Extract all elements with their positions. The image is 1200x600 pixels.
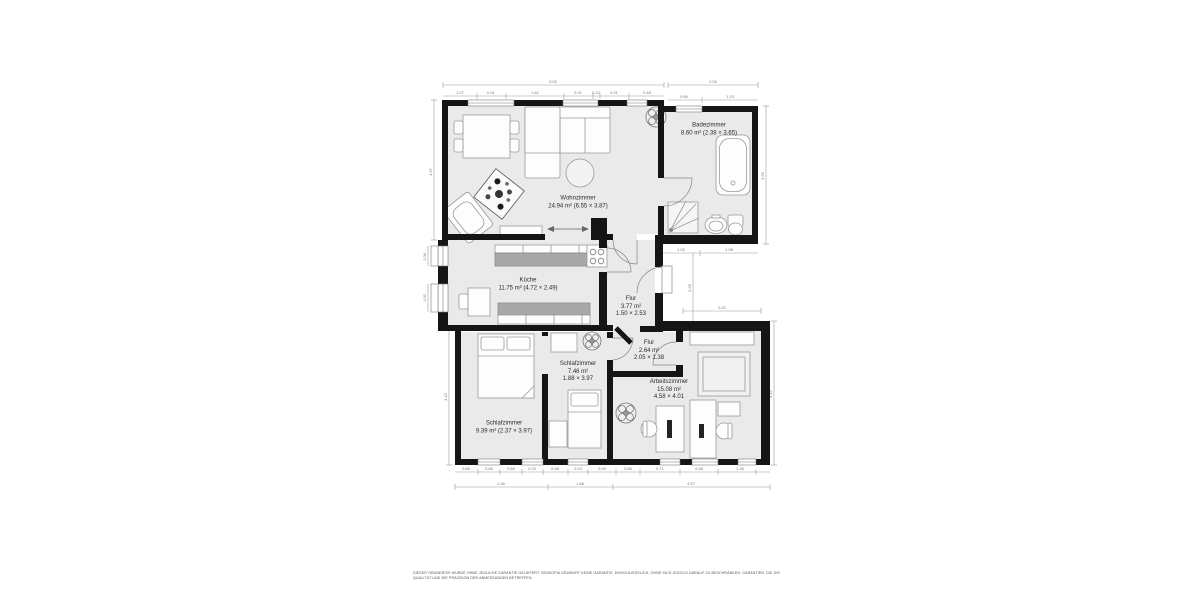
room-info: 9.39 m² (2.37 × 3.97) [476, 428, 532, 436]
dim-label: 1.38 [736, 466, 745, 471]
dim-label: 6.93 [549, 79, 558, 84]
dim-label: 0.98 [695, 466, 704, 471]
room-label-kueche: Küche 11.75 m² (4.72 × 2.49) [498, 278, 557, 293]
dim-label: 1.08 [422, 252, 427, 261]
room-name: Küche [498, 278, 557, 286]
dim-label: 4.37 [428, 167, 433, 176]
dim-label: 1.23 [726, 94, 735, 99]
room-label-badezimmer: Badezimmer 8.60 m² (2.38 × 3.65) [681, 123, 737, 138]
room-area: 7.46 m² [560, 368, 596, 376]
dim-label: 0.91 [487, 90, 496, 95]
dim-label: 2.28 [687, 283, 692, 292]
office-rug [698, 352, 750, 396]
room-area: 15.08 m² [650, 386, 688, 394]
plant-icon [583, 332, 601, 350]
dresser [551, 333, 577, 352]
dining-table-group [454, 115, 519, 158]
room-area: 2.64 m² [634, 347, 664, 355]
plant-icon [616, 403, 636, 423]
room-name: Badezimmer [681, 123, 737, 131]
room-label-arbeitszimmer: Arbeitszimmer 15.08 m² 4.58 × 4.01 [650, 379, 688, 402]
room-info: 11.75 m² (4.72 × 2.49) [498, 285, 557, 293]
dim-label: 0.66 [462, 466, 471, 471]
dim-label: 0.23 [528, 466, 537, 471]
room-name: Schlafzimmer [560, 361, 596, 369]
dim-label: 1.00 [677, 247, 686, 252]
office-sideboard [690, 332, 754, 345]
floorplan-svg: 6.93 1.07 0.91 1.82 0.91 0.22 0.91 0.48 … [0, 0, 1200, 600]
coffee-table [566, 159, 594, 187]
shelf [718, 402, 740, 416]
toilet [728, 215, 743, 235]
dim-label: 0.93 [598, 466, 607, 471]
dim-label: 0.86 [485, 466, 494, 471]
room-name: Schlafzimmer [476, 421, 532, 429]
dim-label: 0.71 [656, 466, 665, 471]
dim-label: 0.66 [507, 466, 516, 471]
dim-label: 2.02 [718, 305, 727, 310]
shower [668, 201, 699, 233]
room-label-flur-1: Flur 3.77 m² 1.50 × 2.53 [616, 296, 646, 319]
dim-label: 1.00 [422, 293, 427, 302]
dim-label: 0.85 [680, 94, 689, 99]
disclaimer-line-2: QUALITÄT UND DIE PRÄZISION DER ABMESSUNG… [413, 576, 813, 581]
entrance-door-leaf [662, 266, 672, 293]
dim-label: 0.22 [592, 90, 601, 95]
room-label-wohnzimmer: Wohnzimmer 24.94 m² (6.55 × 3.87) [548, 196, 608, 211]
bathtub [716, 135, 750, 195]
dim-label: 2.36 [497, 481, 506, 486]
dim-label: 3.65 [760, 171, 765, 180]
room-name: Flur [616, 296, 646, 304]
cabinet [549, 421, 567, 447]
dim-label: 0.98 [551, 466, 560, 471]
dim-label: 4.42 [443, 392, 448, 401]
dim-label: 0.86 [624, 466, 633, 471]
dim-label: 0.91 [610, 90, 619, 95]
room-area: 3.77 m² [616, 303, 646, 311]
floorplan-canvas: 6.93 1.07 0.91 1.82 0.91 0.22 0.91 0.48 … [0, 0, 1200, 600]
double-bed [478, 334, 534, 398]
single-bed [568, 390, 601, 448]
dim-label: 1.82 [531, 90, 540, 95]
room-label-schlafzimmer-gross: Schlafzimmer 9.39 m² (2.37 × 3.97) [476, 421, 532, 436]
room-info: 24.94 m² (6.55 × 3.87) [548, 203, 608, 211]
dim-label: 0.48 [643, 90, 652, 95]
dim-label: 1.88 [576, 481, 585, 486]
room-label-flur-2: Flur 2.64 m² 2.05 × 1.38 [634, 340, 664, 363]
room-name: Flur [634, 340, 664, 348]
dim-label: 2.56 [709, 79, 718, 84]
room-size: 2.05 × 1.38 [634, 355, 664, 363]
room-name: Wohnzimmer [548, 196, 608, 204]
dim-label: 1.98 [725, 247, 734, 252]
dim-label: 4.57 [687, 481, 696, 486]
room-size: 1.88 × 3.97 [560, 376, 596, 384]
stove [587, 245, 607, 267]
room-name: Arbeitszimmer [650, 379, 688, 387]
room-size: 1.50 × 2.53 [616, 311, 646, 319]
dim-label: 0.23 [574, 466, 583, 471]
dim-label: 0.91 [574, 90, 583, 95]
dim-label: 1.07 [456, 90, 465, 95]
room-label-schlafzimmer-klein: Schlafzimmer 7.46 m² 1.88 × 3.97 [560, 361, 596, 384]
room-size: 4.58 × 4.01 [650, 394, 688, 402]
room-info: 8.60 m² (2.38 × 3.65) [681, 130, 737, 138]
disclaimer-text: DIESER GRUNDRISS WURDE OHNE JEGLICHE GAR… [413, 571, 813, 581]
